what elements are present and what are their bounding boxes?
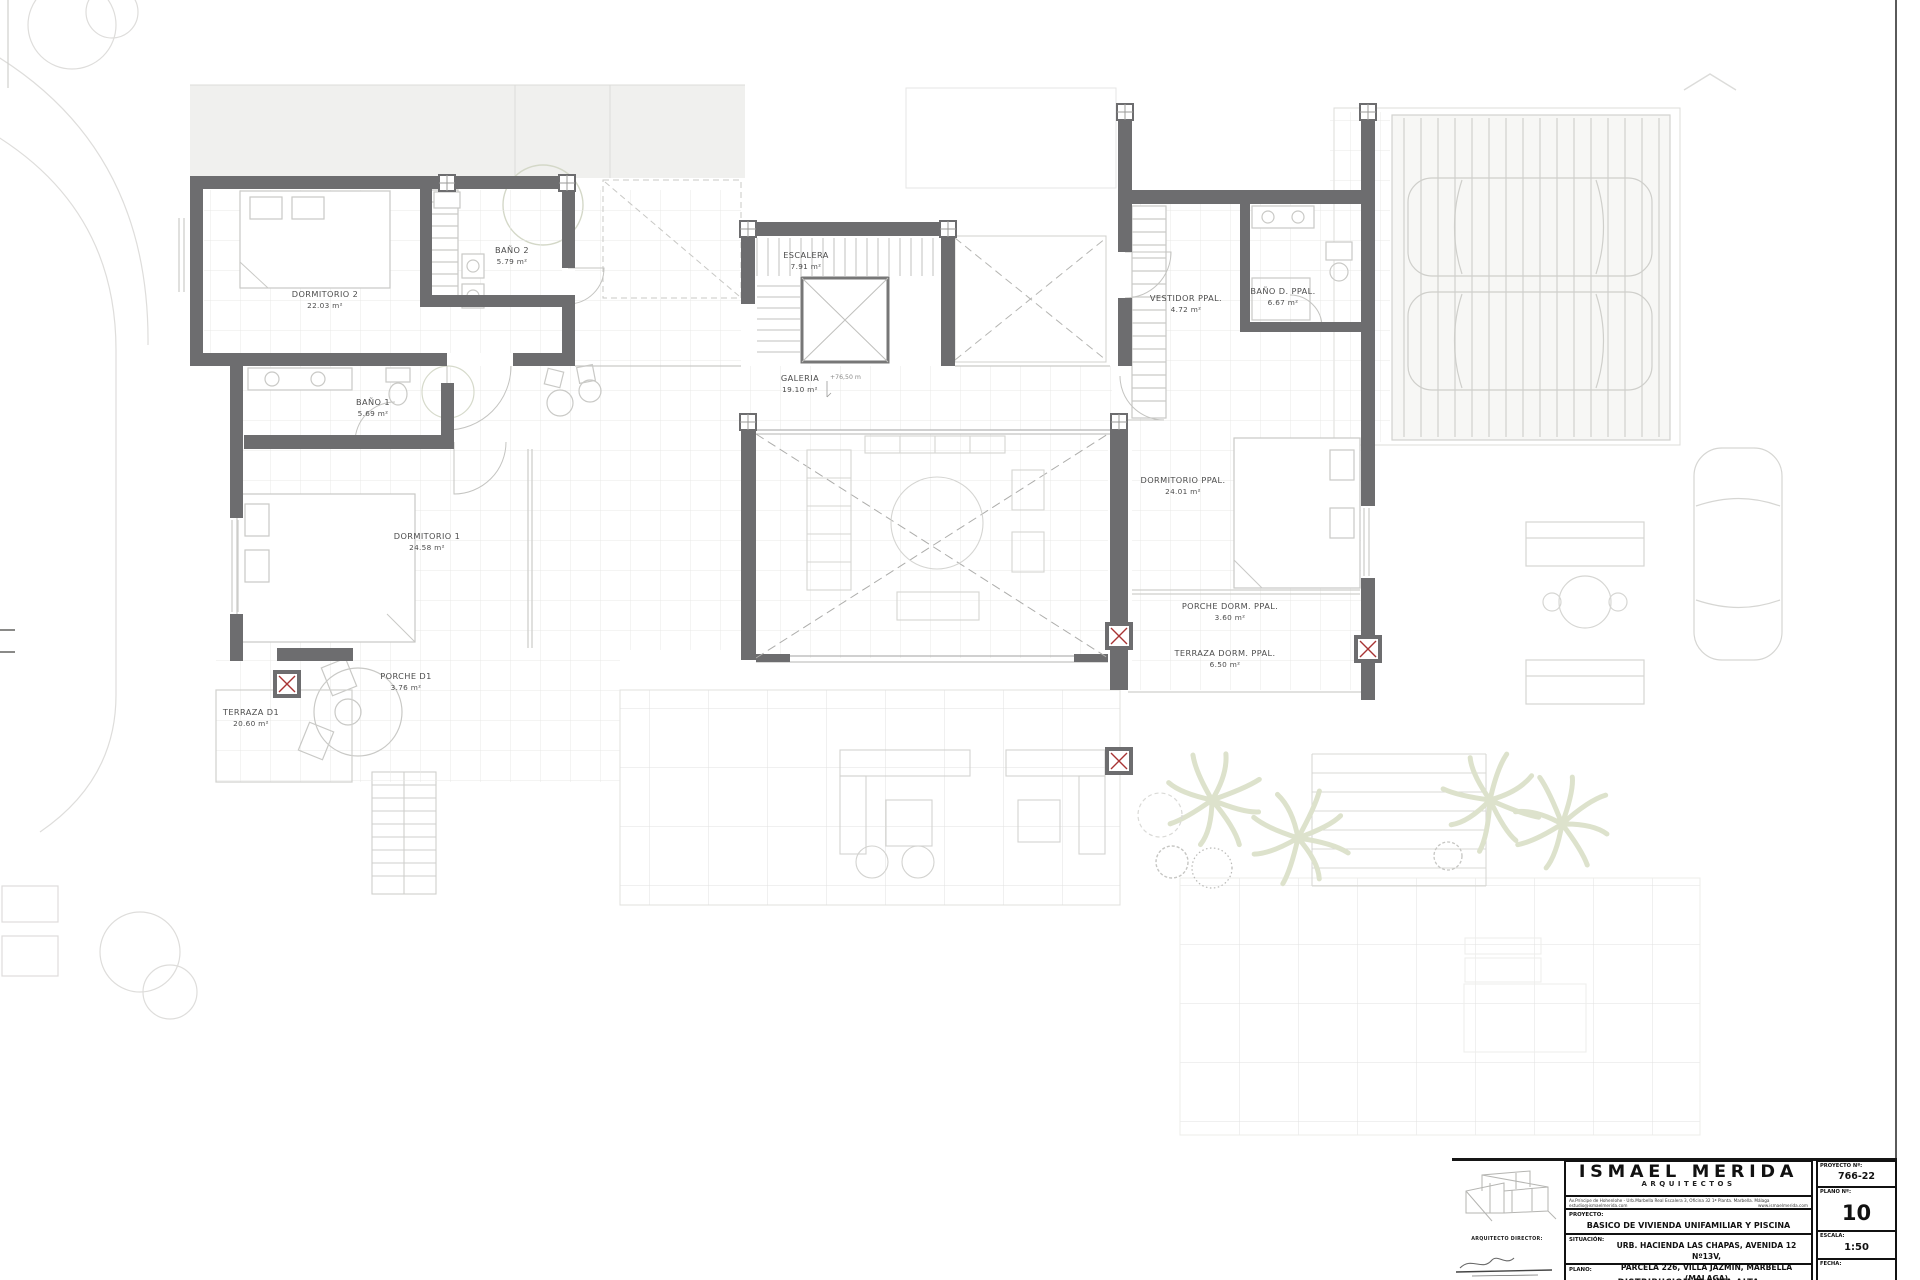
room-label: TERRAZA D1 (222, 707, 279, 717)
room-label: DORMITORIO PPAL. (1140, 475, 1225, 485)
svg-text:+76,50 m: +76,50 m (830, 374, 861, 381)
proyecto-num-label: PROYECTO Nº: (1820, 1163, 1862, 1169)
room-area: 5.69 m² (358, 409, 389, 418)
garage-pergola (1330, 108, 1680, 445)
situacion-line1: URB. HACIENDA LAS CHAPAS, AVENIDA 12 Nº1… (1604, 1240, 1809, 1262)
firm-header: ISMAEL MERIDA ARQUITECTOS (1566, 1162, 1811, 1197)
room-label: ESCALERA (783, 250, 829, 260)
proyecto-num-cell: PROYECTO Nº: 766-22 (1818, 1162, 1895, 1188)
room-label: BAÑO D. PPAL. (1250, 286, 1315, 296)
title-block-number-panel: PROYECTO Nº: 766-22 PLANO Nº: 10 ESCALA:… (1816, 1160, 1897, 1280)
proyecto-row: PROYECTO: BASICO DE VIVIENDA UNIFAMILIAR… (1566, 1210, 1811, 1235)
proyecto-label: PROYECTO: (1569, 1212, 1603, 1218)
house-sketch-icon (1452, 1161, 1562, 1233)
room-area: 24.01 m² (1165, 487, 1201, 496)
firm-website: www.ismaelmerida.com (1758, 1203, 1808, 1208)
room-area: 5.79 m² (497, 257, 528, 266)
exterior-stair (372, 772, 436, 894)
firm-name: ISMAEL MERIDA (1566, 1163, 1811, 1181)
situacion-row: SITUACIÓN: URB. HACIENDA LAS CHAPAS, AVE… (1566, 1235, 1811, 1265)
room-label: BAÑO 1 (356, 397, 390, 407)
room-label: VESTIDOR PPAL. (1150, 293, 1222, 303)
firm-address-row: Av.Príncipe de Hohenlohe - Urb.Marbella … (1566, 1197, 1811, 1210)
room-area: 7.91 m² (791, 262, 822, 271)
room-label: GALERIA (781, 373, 819, 383)
room-label: TERRAZA DORM. PPAL. (1173, 648, 1275, 658)
garden-paths (0, 0, 197, 1019)
room-area: 6.67 m² (1268, 298, 1299, 307)
garden-furniture (1526, 448, 1782, 704)
roof-patch (190, 85, 745, 178)
room-area: 24.58 m² (409, 543, 445, 552)
plano-row: PLANO: DISTRIBUCION PLANTA ALTA (1566, 1265, 1811, 1280)
fecha-label: FECHA: (1820, 1261, 1841, 1267)
title-block-architect-panel: ARQUITECTO DIRECTOR: (1452, 1161, 1562, 1280)
situacion-label: SITUACIÓN: (1569, 1237, 1604, 1243)
room-area: 3.60 m² (1215, 613, 1246, 622)
fecha-cell: FECHA: (1818, 1260, 1895, 1280)
architect-director-label: ARQUITECTO DIRECTOR: (1452, 1237, 1562, 1242)
room-label: BAÑO 2 (495, 245, 529, 255)
palm-tree-icon (1157, 743, 1268, 854)
signature (1452, 1246, 1562, 1280)
room-label: PORCHE D1 (380, 671, 431, 681)
bed (1234, 438, 1360, 588)
drawing-sheet: DORMITORIO 2 22.03 m² BAÑO 2 5.79 m² ESC… (0, 0, 1920, 1280)
room-label: DORMITORIO 2 (292, 289, 359, 299)
escala-cell: ESCALA: 1:50 (1818, 1232, 1895, 1260)
escala-label: ESCALA: (1820, 1233, 1845, 1239)
title-block: ARQUITECTO DIRECTOR: ISMAEL MERIDA ARQUI… (1452, 1158, 1897, 1280)
plano-num-label: PLANO Nº: (1820, 1189, 1851, 1195)
room-area: 4.72 m² (1171, 305, 1202, 314)
room-area: 6.50 m² (1210, 660, 1241, 669)
wardrobe (1132, 206, 1166, 418)
room-label: DORMITORIO 1 (394, 531, 461, 541)
firm-email: estudio@ismaelmerida.com (1569, 1203, 1627, 1208)
floor-plan-canvas: DORMITORIO 2 22.03 m² BAÑO 2 5.79 m² ESC… (0, 0, 1920, 1280)
plano-label: PLANO: (1569, 1267, 1592, 1273)
room-area: 22.03 m² (307, 301, 343, 310)
room-label: PORCHE DORM. PPAL. (1182, 601, 1278, 611)
title-block-main-panel: ISMAEL MERIDA ARQUITECTOS Av.Príncipe de… (1564, 1160, 1813, 1280)
room-area: 19.10 m² (782, 385, 818, 394)
room-area: 20.60 m² (233, 719, 269, 728)
room-area: 3.76 m² (391, 683, 422, 692)
plano-num-cell: PLANO Nº: 10 (1818, 1188, 1895, 1232)
firm-subtitle: ARQUITECTOS (1566, 1181, 1811, 1188)
bed (240, 191, 390, 288)
plano-value: DISTRIBUCION PLANTA ALTA (1566, 1265, 1811, 1280)
bed (237, 494, 415, 642)
terrace-paving (620, 690, 1120, 905)
pool-deck-paving (1180, 878, 1700, 1135)
